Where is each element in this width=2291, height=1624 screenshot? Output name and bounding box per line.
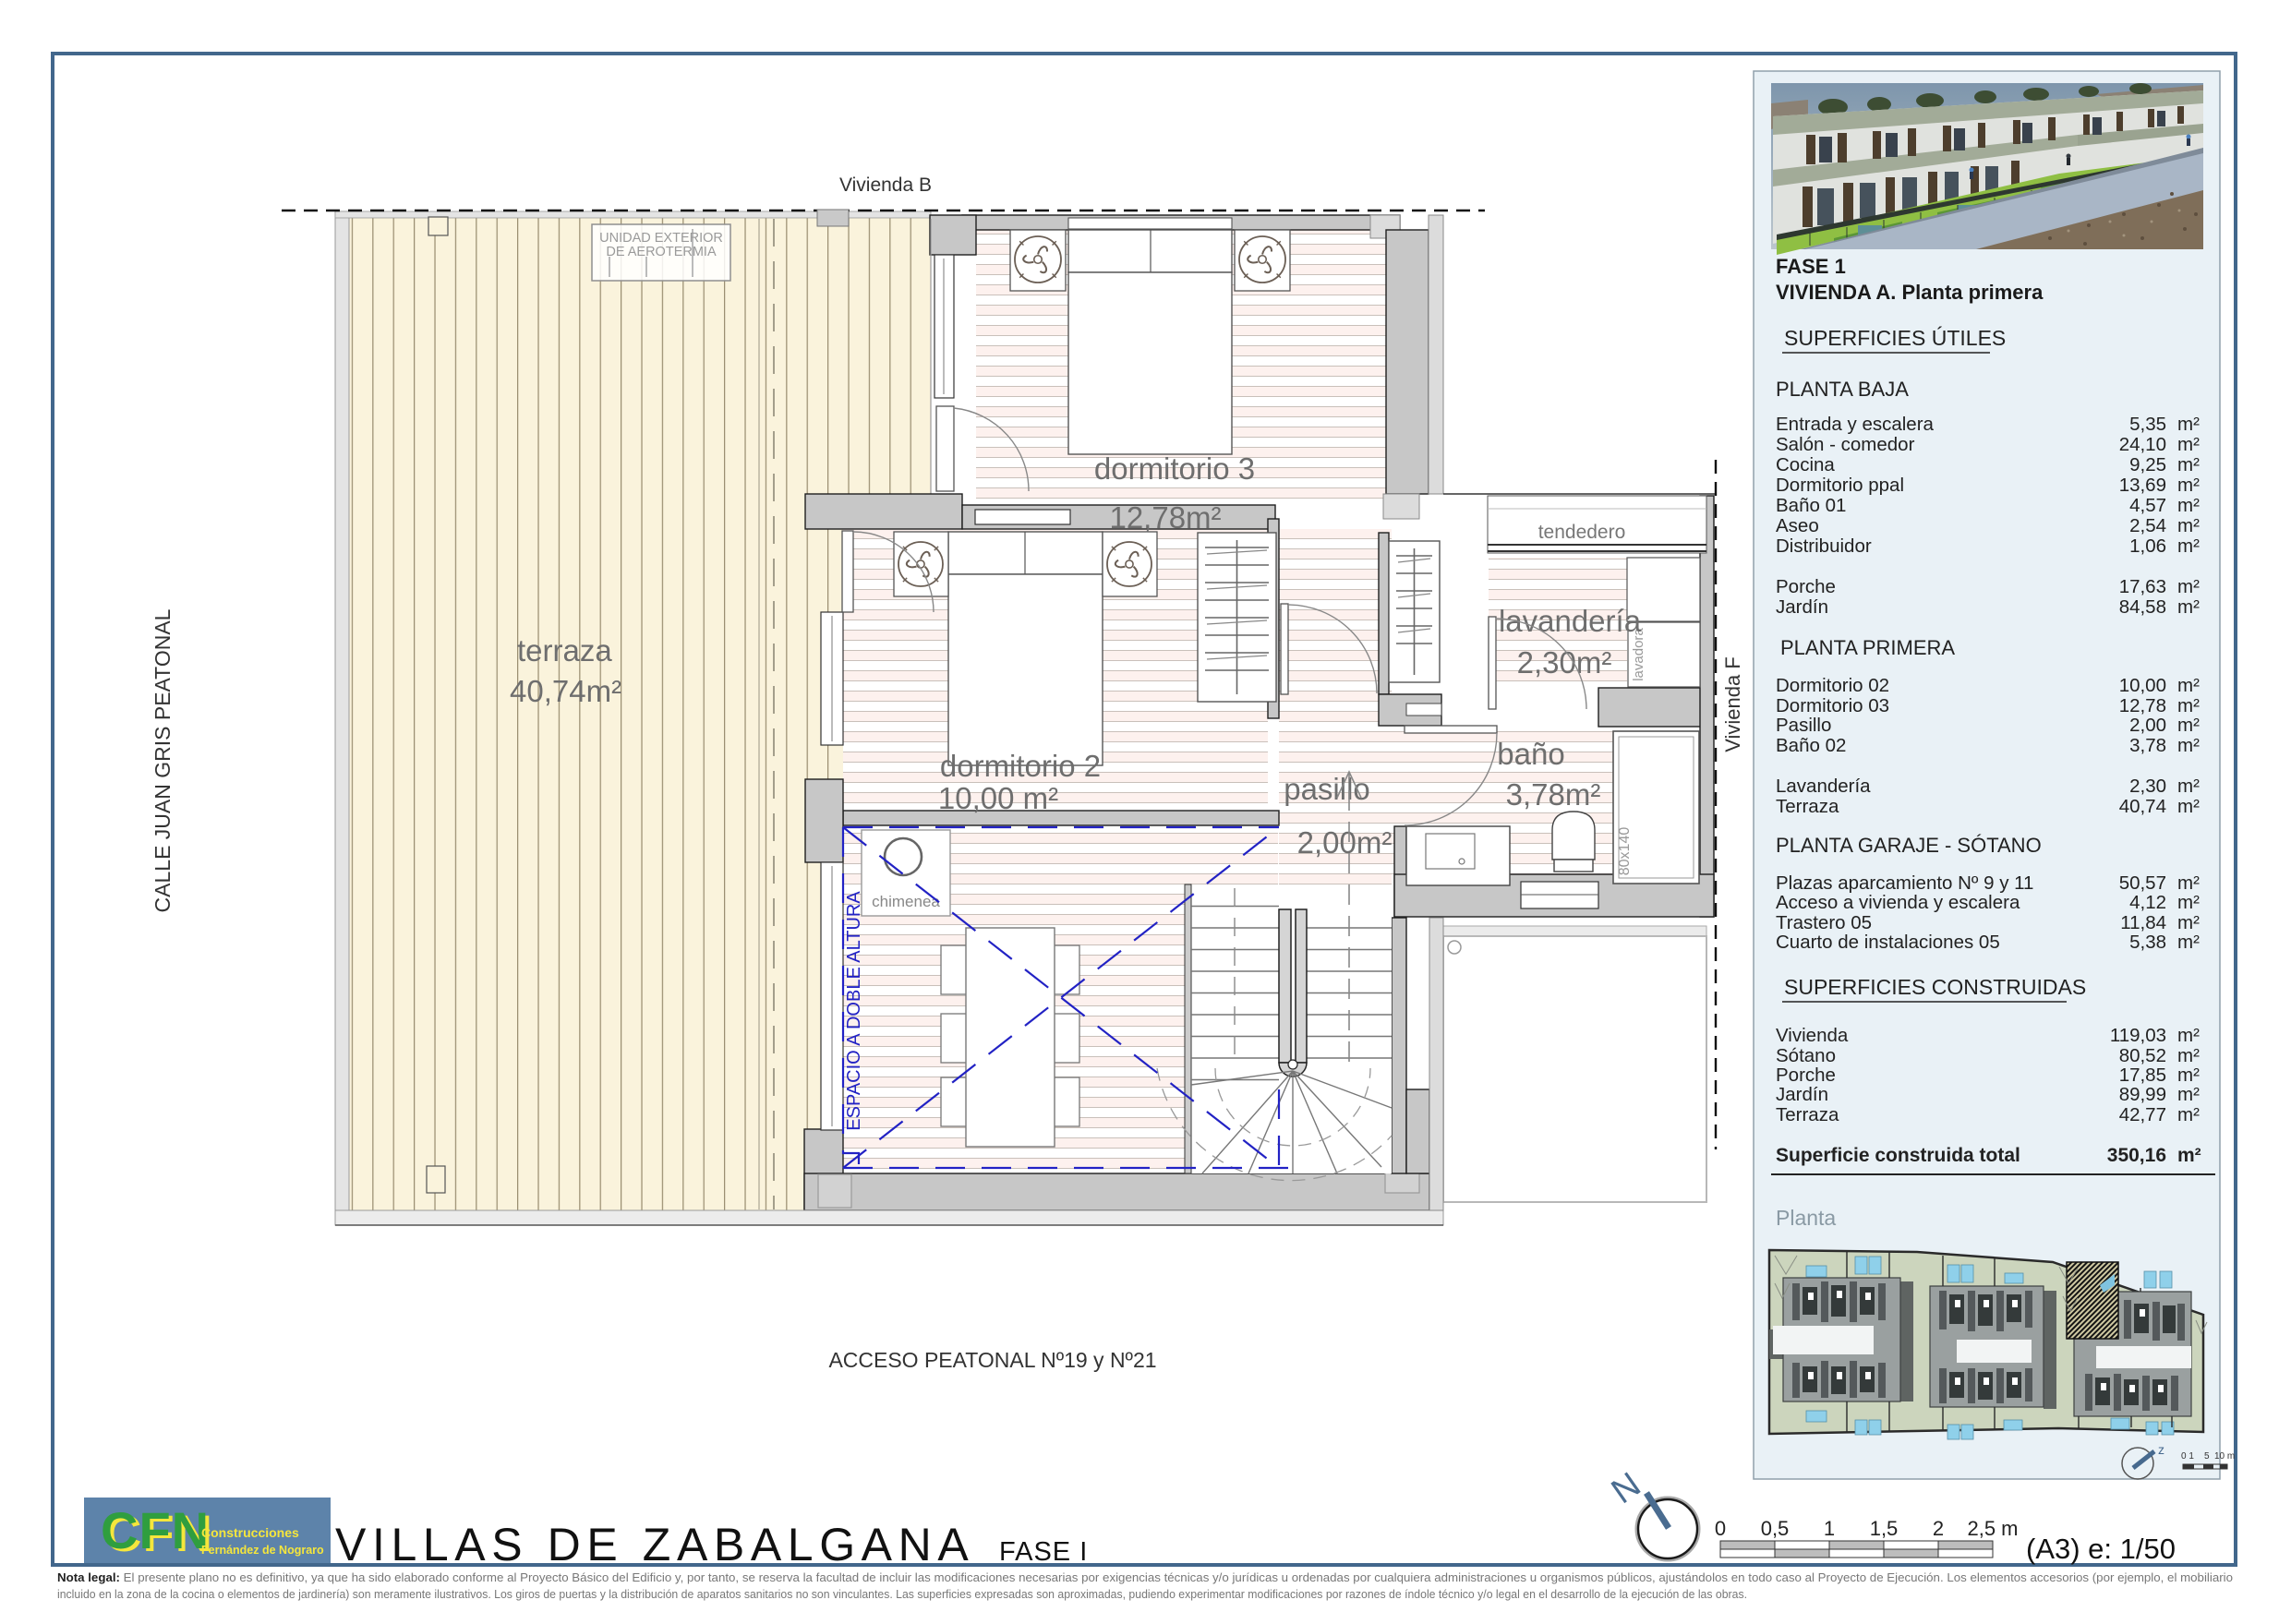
svg-text:4,12: 4,12 <box>2129 892 2166 913</box>
svg-text:m²: m² <box>2177 912 2200 933</box>
svg-text:89,99: 89,99 <box>2119 1084 2166 1105</box>
svg-text:2,00: 2,00 <box>2129 715 2166 736</box>
svg-text:Superficie construida total: Superficie construida total <box>1776 1145 2020 1166</box>
svg-text:Fernández de Nograro: Fernández de Nograro <box>201 1544 324 1557</box>
svg-text:Sótano: Sótano <box>1776 1045 1836 1066</box>
svg-text:ACCESO PEATONAL Nº19 y Nº21: ACCESO PEATONAL Nº19 y Nº21 <box>828 1348 1156 1372</box>
svg-text:1,06: 1,06 <box>2129 535 2166 557</box>
svg-text:DE AEROTERMIA: DE AEROTERMIA <box>606 245 717 259</box>
svg-text:13,69: 13,69 <box>2119 475 2166 496</box>
svg-text:m²: m² <box>2177 434 2200 455</box>
svg-text:dormitorio 2: dormitorio 2 <box>940 749 1101 783</box>
svg-text:Cocina: Cocina <box>1776 454 1835 475</box>
svg-text:m²: m² <box>2177 515 2200 536</box>
svg-text:m²: m² <box>2177 454 2200 475</box>
svg-text:m²: m² <box>2177 675 2200 696</box>
svg-text:1,5: 1,5 <box>1870 1517 1899 1540</box>
svg-text:incluido en la zona de la coci: incluido en la zona de la cocina o eleme… <box>57 1587 1747 1601</box>
svg-text:PLANTA PRIMERA: PLANTA PRIMERA <box>1780 636 1955 659</box>
svg-text:m²: m² <box>2177 892 2200 913</box>
svg-text:m²: m² <box>2177 796 2200 817</box>
svg-text:Lavandería: Lavandería <box>1776 776 1871 797</box>
svg-text:Cuarto de instalaciones 05: Cuarto de instalaciones 05 <box>1776 932 2000 953</box>
svg-text:m²: m² <box>2177 872 2200 894</box>
svg-text:Entrada y escalera: Entrada y escalera <box>1776 414 1935 435</box>
svg-text:24,10: 24,10 <box>2119 434 2166 455</box>
svg-text:Vivienda F: Vivienda F <box>1721 656 1744 752</box>
svg-text:Trastero 05: Trastero 05 <box>1776 912 1872 933</box>
svg-text:Porche: Porche <box>1776 1065 1836 1086</box>
svg-text:Aseo: Aseo <box>1776 515 1819 536</box>
svg-text:m²: m² <box>2177 414 2200 435</box>
svg-text:m²: m² <box>2177 1025 2200 1046</box>
svg-text:Construcciones: Construcciones <box>201 1525 299 1540</box>
svg-text:Dormitorio 03: Dormitorio 03 <box>1776 695 1889 716</box>
svg-text:FASE 1: FASE 1 <box>1776 255 1846 278</box>
svg-text:5,35: 5,35 <box>2129 414 2166 435</box>
svg-text:m²: m² <box>2177 475 2200 496</box>
svg-text:FASE I: FASE I <box>999 1537 1088 1567</box>
svg-text:m²: m² <box>2177 1145 2201 1166</box>
svg-text:Jardín: Jardín <box>1776 596 1828 618</box>
svg-text:m²: m² <box>2177 1104 2200 1125</box>
svg-text:m²: m² <box>2177 1045 2200 1066</box>
svg-text:80,52: 80,52 <box>2119 1045 2166 1066</box>
svg-text:m²: m² <box>2177 715 2200 736</box>
svg-text:10,00: 10,00 <box>2119 675 2166 696</box>
svg-text:5,38: 5,38 <box>2129 932 2166 953</box>
svg-text:84,58: 84,58 <box>2119 596 2166 618</box>
svg-text:VILLAS DE ZABALGANA: VILLAS DE ZABALGANA <box>335 1519 974 1570</box>
svg-text:3,78: 3,78 <box>2129 735 2166 756</box>
svg-text:baño: baño <box>1497 737 1564 771</box>
svg-text:0: 0 <box>1715 1517 1726 1540</box>
svg-text:Jardín: Jardín <box>1776 1084 1828 1105</box>
svg-text:Distribuidor: Distribuidor <box>1776 535 1872 557</box>
svg-text:m²: m² <box>2177 1065 2200 1086</box>
svg-text:dormitorio 3: dormitorio 3 <box>1094 451 1255 486</box>
svg-text:tendedero: tendedero <box>1538 522 1626 543</box>
svg-text:PLANTA GARAJE - SÓTANO: PLANTA GARAJE - SÓTANO <box>1776 834 2042 857</box>
svg-text:m²: m² <box>2177 932 2200 953</box>
svg-text:12,78m²: 12,78m² <box>1109 500 1221 535</box>
svg-text:(A3) e: 1/50: (A3) e: 1/50 <box>2026 1533 2176 1565</box>
svg-text:Salón - comedor: Salón - comedor <box>1776 434 1915 455</box>
svg-text:5: 5 <box>2204 1451 2210 1462</box>
svg-text:Planta: Planta <box>1776 1206 1836 1230</box>
svg-text:350,16: 350,16 <box>2107 1145 2166 1166</box>
svg-text:Porche: Porche <box>1776 576 1836 597</box>
svg-text:119,03: 119,03 <box>2110 1025 2166 1046</box>
svg-text:1: 1 <box>1824 1517 1835 1540</box>
svg-text:ESPACIO A DOBLE ALTURA: ESPACIO A DOBLE ALTURA <box>844 891 864 1131</box>
svg-text:2,30: 2,30 <box>2129 776 2166 797</box>
svg-text:17,63: 17,63 <box>2119 576 2166 597</box>
svg-text:2,00m²: 2,00m² <box>1297 825 1393 860</box>
svg-text:CFN: CFN <box>101 1501 210 1559</box>
svg-text:17,85: 17,85 <box>2119 1065 2166 1086</box>
svg-text:z: z <box>2158 1442 2164 1457</box>
svg-text:Baño 02: Baño 02 <box>1776 735 1846 756</box>
svg-text:12,78: 12,78 <box>2119 695 2166 716</box>
svg-text:terraza: terraza <box>517 633 612 668</box>
svg-text:m²: m² <box>2177 535 2200 557</box>
svg-text:Nota legal: El presente plano: Nota legal: El presente plano no es defi… <box>57 1570 2233 1584</box>
svg-text:m²: m² <box>2177 1084 2200 1105</box>
svg-text:Vivienda: Vivienda <box>1776 1025 1849 1046</box>
svg-text:10 m: 10 m <box>2214 1451 2235 1462</box>
svg-text:Dormitorio 02: Dormitorio 02 <box>1776 675 1889 696</box>
svg-text:VIVIENDA A. Planta primera: VIVIENDA A. Planta primera <box>1776 281 2044 304</box>
svg-text:SUPERFICIES ÚTILES: SUPERFICIES ÚTILES <box>1784 326 2006 350</box>
svg-text:11,84: 11,84 <box>2120 912 2166 933</box>
svg-text:m²: m² <box>2177 735 2200 756</box>
svg-text:Terraza: Terraza <box>1776 796 1839 817</box>
svg-text:m²: m² <box>2177 576 2200 597</box>
svg-text:lavandería: lavandería <box>1499 604 1642 638</box>
svg-text:Baño 01: Baño 01 <box>1776 495 1846 516</box>
svg-text:Dormitorio ppal: Dormitorio ppal <box>1776 475 1904 496</box>
svg-text:4,57: 4,57 <box>2129 495 2166 516</box>
svg-text:2,5 m: 2,5 m <box>1967 1517 2018 1540</box>
svg-text:0 1: 0 1 <box>2181 1451 2194 1462</box>
svg-text:Terraza: Terraza <box>1776 1104 1839 1125</box>
svg-text:CALLE JUAN GRIS PEATONAL: CALLE JUAN GRIS PEATONAL <box>151 608 175 912</box>
svg-text:0,5: 0,5 <box>1761 1517 1790 1540</box>
svg-text:Vivienda B: Vivienda B <box>839 174 932 196</box>
svg-text:42,77: 42,77 <box>2119 1104 2166 1125</box>
svg-text:SUPERFICIES CONSTRUIDAS: SUPERFICIES CONSTRUIDAS <box>1784 975 2086 999</box>
svg-text:50,57: 50,57 <box>2119 872 2166 894</box>
svg-text:9,25: 9,25 <box>2129 454 2166 475</box>
svg-text:2: 2 <box>1933 1517 1944 1540</box>
svg-text:m²: m² <box>2177 495 2200 516</box>
svg-text:m²: m² <box>2177 776 2200 797</box>
svg-text:3,78m²: 3,78m² <box>1506 777 1601 812</box>
svg-text:Pasillo: Pasillo <box>1776 715 1831 736</box>
svg-text:2,54: 2,54 <box>2129 515 2166 536</box>
svg-text:m²: m² <box>2177 596 2200 618</box>
svg-text:80x140: 80x140 <box>1617 827 1633 876</box>
svg-text:40,74: 40,74 <box>2119 796 2166 817</box>
svg-text:PLANTA BAJA: PLANTA BAJA <box>1776 378 1909 401</box>
svg-text:10,00 m²: 10,00 m² <box>938 781 1058 815</box>
svg-text:Plazas aparcamiento Nº 9 y 11: Plazas aparcamiento Nº 9 y 11 <box>1776 872 2033 894</box>
svg-text:Acceso a vivienda y escalera: Acceso a vivienda y escalera <box>1776 892 2020 913</box>
svg-text:m²: m² <box>2177 695 2200 716</box>
svg-text:UNIDAD EXTERIOR: UNIDAD EXTERIOR <box>599 231 723 246</box>
svg-text:40,74m²: 40,74m² <box>510 674 621 708</box>
